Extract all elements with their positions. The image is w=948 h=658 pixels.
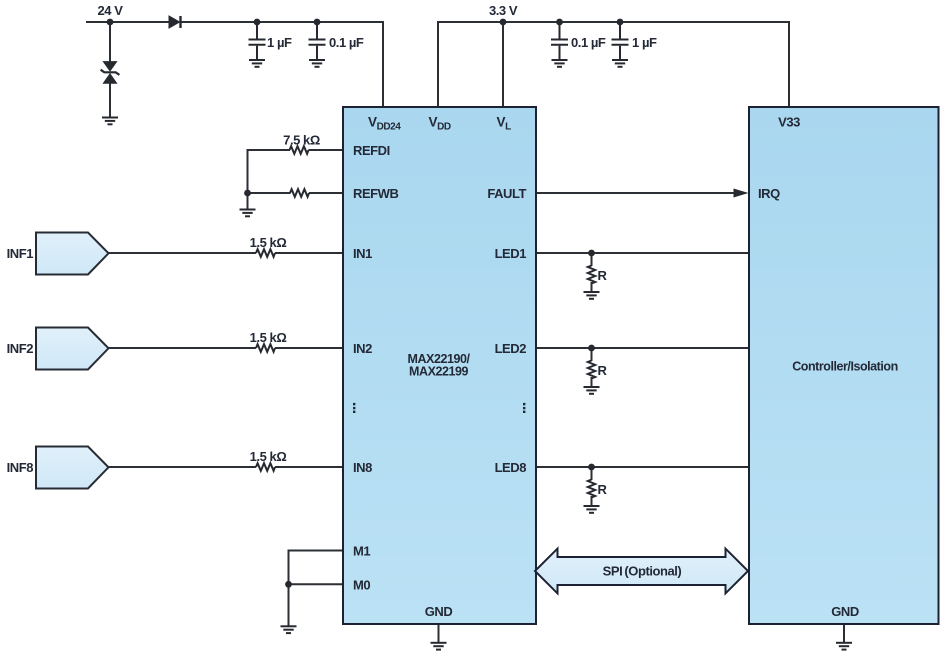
svg-text:MAX22199: MAX22199 [409,365,468,379]
svg-text:GND: GND [425,604,453,619]
svg-text:IN8: IN8 [353,460,372,475]
svg-text:V33: V33 [778,115,800,130]
svg-text:1.5 kΩ: 1.5 kΩ [250,330,287,345]
svg-text:IRQ: IRQ [758,186,780,201]
svg-text:REFWB: REFWB [353,186,398,201]
svg-text:M0: M0 [353,577,370,592]
svg-text:7.5 kΩ: 7.5 kΩ [283,133,320,148]
svg-text:0.1 µF: 0.1 µF [329,35,364,50]
svg-text:1 µF: 1 µF [267,35,292,50]
svg-text:1.5 kΩ: 1.5 kΩ [250,235,287,250]
svg-text:REFDI: REFDI [353,143,390,158]
svg-text:LED2: LED2 [495,341,527,356]
svg-text:FAULT: FAULT [487,186,526,201]
svg-text:SPI (Optional): SPI (Optional) [603,564,682,579]
svg-text:R: R [598,268,608,283]
svg-text:INF8: INF8 [7,460,34,475]
svg-text:R: R [598,482,608,497]
svg-text:1.5 kΩ: 1.5 kΩ [250,449,287,464]
svg-text:LED8: LED8 [495,460,527,475]
svg-text:GND: GND [831,604,859,619]
svg-text:Controller/Isolation: Controller/Isolation [792,360,898,374]
svg-text:3.3 V: 3.3 V [489,3,518,18]
svg-text:R: R [598,363,608,378]
svg-text:INF1: INF1 [7,246,34,261]
svg-text:INF2: INF2 [7,341,34,356]
svg-text:M1: M1 [353,544,370,559]
svg-text:1 µF: 1 µF [632,35,657,50]
svg-text:IN2: IN2 [353,341,372,356]
svg-text:IN1: IN1 [353,246,372,261]
svg-text:LED1: LED1 [495,246,527,261]
svg-text:0.1 µF: 0.1 µF [571,35,606,50]
svg-text:24 V: 24 V [98,3,124,18]
